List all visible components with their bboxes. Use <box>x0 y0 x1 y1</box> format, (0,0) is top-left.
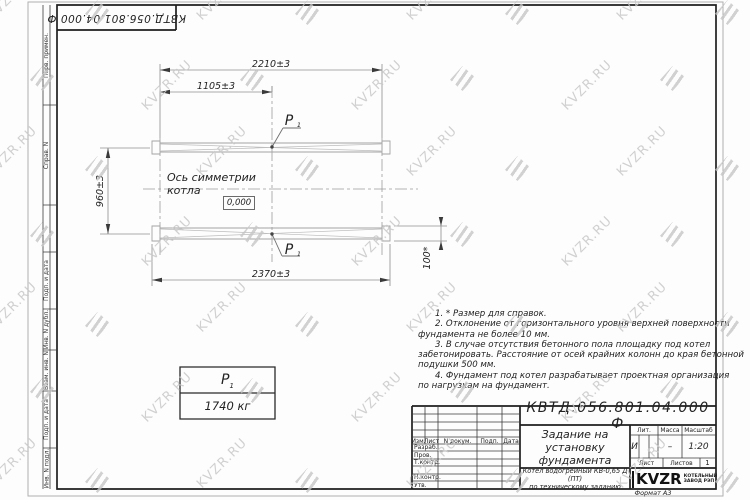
note-line: 3. В случае отсутствия бетонного пола пл… <box>418 340 716 350</box>
strip-label-vzam-inv: Взам. инв. N <box>43 350 50 391</box>
kvzr-logo-caption: КОТЕЛЬНЫЙ ЗАВОД РЭП <box>684 474 718 485</box>
technical-notes: 1. * Размер для справок. 2. Отклонение о… <box>418 309 716 391</box>
format-label: Формат А3 <box>618 489 688 497</box>
kvzr-logo-text: KVZR <box>636 470 682 488</box>
dim-half-top: 1105±3 <box>197 81 235 92</box>
load-table-symbol: Р1 <box>180 367 275 393</box>
strip-label-perv-primen: Перв. примен. <box>43 5 50 105</box>
kvzr-logo: KVZR КОТЕЛЬНЫЙ ЗАВОД РЭП <box>632 469 716 489</box>
corner-stamp: КВТД.056.801.04.000 Ф <box>57 5 176 30</box>
load-point-label-top-sub: 1 <box>297 121 301 129</box>
load-table-value: 1740 кг <box>180 393 275 419</box>
header-podp: Подп. <box>477 437 502 445</box>
load-point-dot-bottom <box>270 232 273 235</box>
note-line: по нагрузкам на фундамент. <box>418 381 716 391</box>
row-tkontr: Т.контр. <box>412 459 440 466</box>
row-razrab: Разраб. <box>412 444 440 451</box>
load-table: Р1 1740 кг <box>180 367 275 419</box>
title-block-doc-number: КВТД.056.801.04.000 Ф <box>520 406 716 425</box>
dim-bottom: 2370±3 <box>252 269 290 280</box>
dim-left: 960±3 <box>95 175 106 207</box>
kvzr-logo-icon <box>632 471 634 488</box>
load-point-label-bottom-sub: 1 <box>297 250 301 258</box>
dim-overall-top: 2210±3 <box>252 59 290 70</box>
title-block-product: Котел водогрейный КВ-0,65 Д (ПТ) по техн… <box>520 469 630 488</box>
row-utv: Утв. <box>412 481 440 489</box>
mass-label: Масса <box>658 425 682 435</box>
row-nkontr: Н.контр. <box>412 474 440 481</box>
load-point-label-bottom: Р <box>285 242 294 258</box>
drawing-sheet: { "sheet": { "corner_stamp": "КВТД.056.8… <box>0 0 750 500</box>
header-data: Дата <box>502 437 520 445</box>
dim-right: 100* <box>422 246 433 269</box>
level-mark: 0,000 <box>223 196 255 210</box>
load-point-dot-top <box>270 145 273 148</box>
note-line: забетонировать. Расстояние от осей крайн… <box>418 350 716 360</box>
note-line: подушки 500 мм. <box>418 360 716 370</box>
mass-value: – <box>658 435 682 458</box>
strip-label-inv-dubl: Инв. N дубл. <box>43 309 50 350</box>
sheets-value: 1 <box>700 458 715 468</box>
header-n-dokum: N докум. <box>438 437 477 445</box>
strip-label-inv-podl: Инв. N подл. <box>43 448 50 489</box>
scale-value: 1:20 <box>682 435 715 458</box>
load-point-label-top: Р <box>285 113 294 129</box>
strip-label-sprav-n: Справ. N <box>43 105 50 205</box>
row-prov: Пров. <box>412 451 440 459</box>
note-line: 2. Отклонение от горизонтального уровня … <box>418 319 716 329</box>
note-line: 1. * Размер для справок. <box>418 309 716 319</box>
note-line: 4. Фундамент под котел разрабатывает про… <box>418 371 716 381</box>
lit-label: Лит. <box>630 425 658 435</box>
corner-stamp-text: КВТД.056.801.04.000 Ф <box>47 12 186 24</box>
strip-label-podp-data-2: Подп. и дата <box>43 391 50 448</box>
boiler-axis-label: Ось симметрии котла <box>167 171 277 197</box>
note-line: фундамента не более 10 мм. <box>418 330 716 340</box>
scale-label: Масштаб <box>682 425 715 435</box>
sheet-label: Лист <box>630 458 663 468</box>
title-block-title: Задание на установку фундамента <box>520 426 630 468</box>
sheets-label: Листов <box>663 458 700 468</box>
strip-label-podp-data-1: Подп. и дата <box>43 252 50 309</box>
lit-value: И <box>630 435 639 458</box>
